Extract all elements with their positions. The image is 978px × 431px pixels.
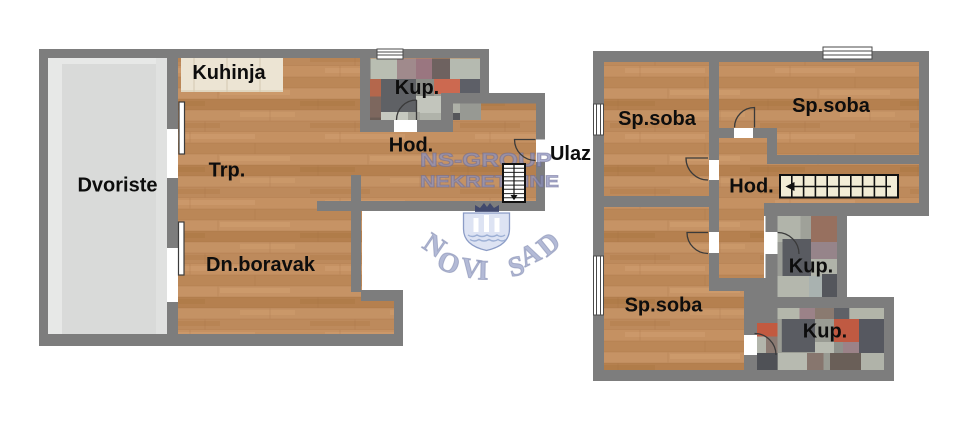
svg-text:Sp.soba: Sp.soba xyxy=(792,95,871,117)
svg-text:Kuhinja: Kuhinja xyxy=(192,62,266,84)
svg-text:Dn.boravak: Dn.boravak xyxy=(206,254,316,276)
svg-text:Kup.: Kup. xyxy=(395,77,439,99)
svg-text:Hod.: Hod. xyxy=(729,176,773,198)
svg-text:Kup.: Kup. xyxy=(789,256,833,278)
svg-text:Dvoriste: Dvoriste xyxy=(77,175,157,197)
svg-text:I: I xyxy=(477,255,488,286)
svg-text:Trp.: Trp. xyxy=(209,160,246,182)
svg-text:Kup.: Kup. xyxy=(803,321,847,343)
svg-text:Sp.soba: Sp.soba xyxy=(625,295,704,317)
svg-text:Sp.soba: Sp.soba xyxy=(618,108,697,130)
svg-text:Ulaz: Ulaz xyxy=(550,143,591,165)
svg-text:Hod.: Hod. xyxy=(389,135,433,157)
svg-text:NEKRETNINE: NEKRETNINE xyxy=(420,172,559,191)
